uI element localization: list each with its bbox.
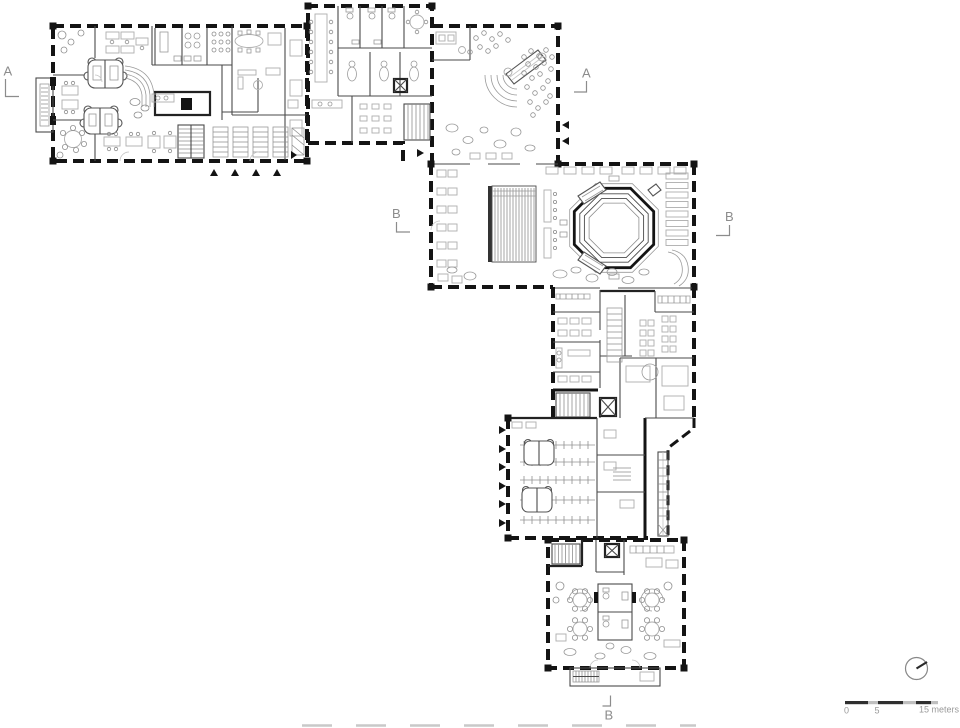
stair	[404, 104, 430, 140]
scale-tick-5: 5	[874, 706, 879, 716]
section-label: B	[605, 708, 614, 723]
stair	[556, 393, 590, 417]
bleacher-seating	[488, 186, 536, 262]
scale-bar: 0 5 15 meters	[844, 701, 960, 716]
section-marker-a-left: A	[4, 64, 20, 97]
left-wing	[36, 23, 311, 165]
octagon-auditorium	[560, 176, 661, 279]
floor-plan-drawing: A A B B B 0 5 15 meters	[0, 0, 960, 728]
section-label: A	[4, 64, 13, 79]
entry-arrows	[499, 426, 506, 527]
kitchen-wing	[553, 287, 694, 418]
scale-tick-15: 15 meters	[919, 705, 960, 715]
stair	[548, 540, 582, 566]
section-label: A	[582, 66, 591, 81]
entrance-arrows	[210, 121, 569, 176]
middle-wing	[305, 3, 436, 165]
section-marker-b-right: B	[716, 209, 734, 236]
acoustic-pod	[80, 106, 122, 134]
stair	[178, 125, 204, 158]
north-arrow-icon	[906, 658, 928, 680]
scale-tick-0: 0	[844, 706, 849, 716]
acoustic-pod	[84, 58, 127, 88]
section-marker-b-left: B	[392, 206, 410, 232]
south-wing	[545, 537, 688, 687]
lab-wing	[499, 415, 648, 542]
round-table-group	[567, 589, 664, 641]
floor-plan-page: A A B B B 0 5 15 meters	[0, 0, 960, 728]
section-label: B	[392, 206, 401, 221]
wc-core	[594, 584, 636, 640]
ramp-corridor	[645, 418, 694, 538]
shelving	[213, 127, 288, 157]
section-marker-a-right: A	[574, 66, 591, 93]
lab-pod	[522, 440, 554, 513]
hall-wing	[428, 161, 698, 291]
section-label: B	[725, 209, 734, 224]
section-marker-b-bottom: B	[603, 696, 614, 723]
south-entry	[570, 668, 660, 686]
northeast-wing	[432, 23, 562, 168]
